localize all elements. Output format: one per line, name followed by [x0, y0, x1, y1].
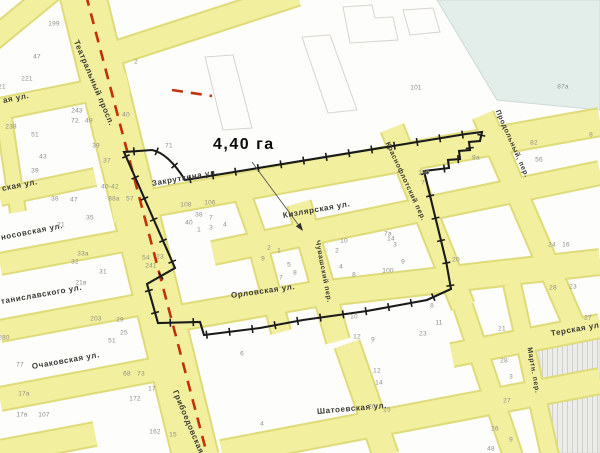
map-graphics — [0, 0, 600, 453]
water-area — [437, 0, 600, 110]
cadastral-map-canvas[interactable]: 4,40 га Театральный просп.Грибоедовскаяа… — [0, 0, 600, 453]
